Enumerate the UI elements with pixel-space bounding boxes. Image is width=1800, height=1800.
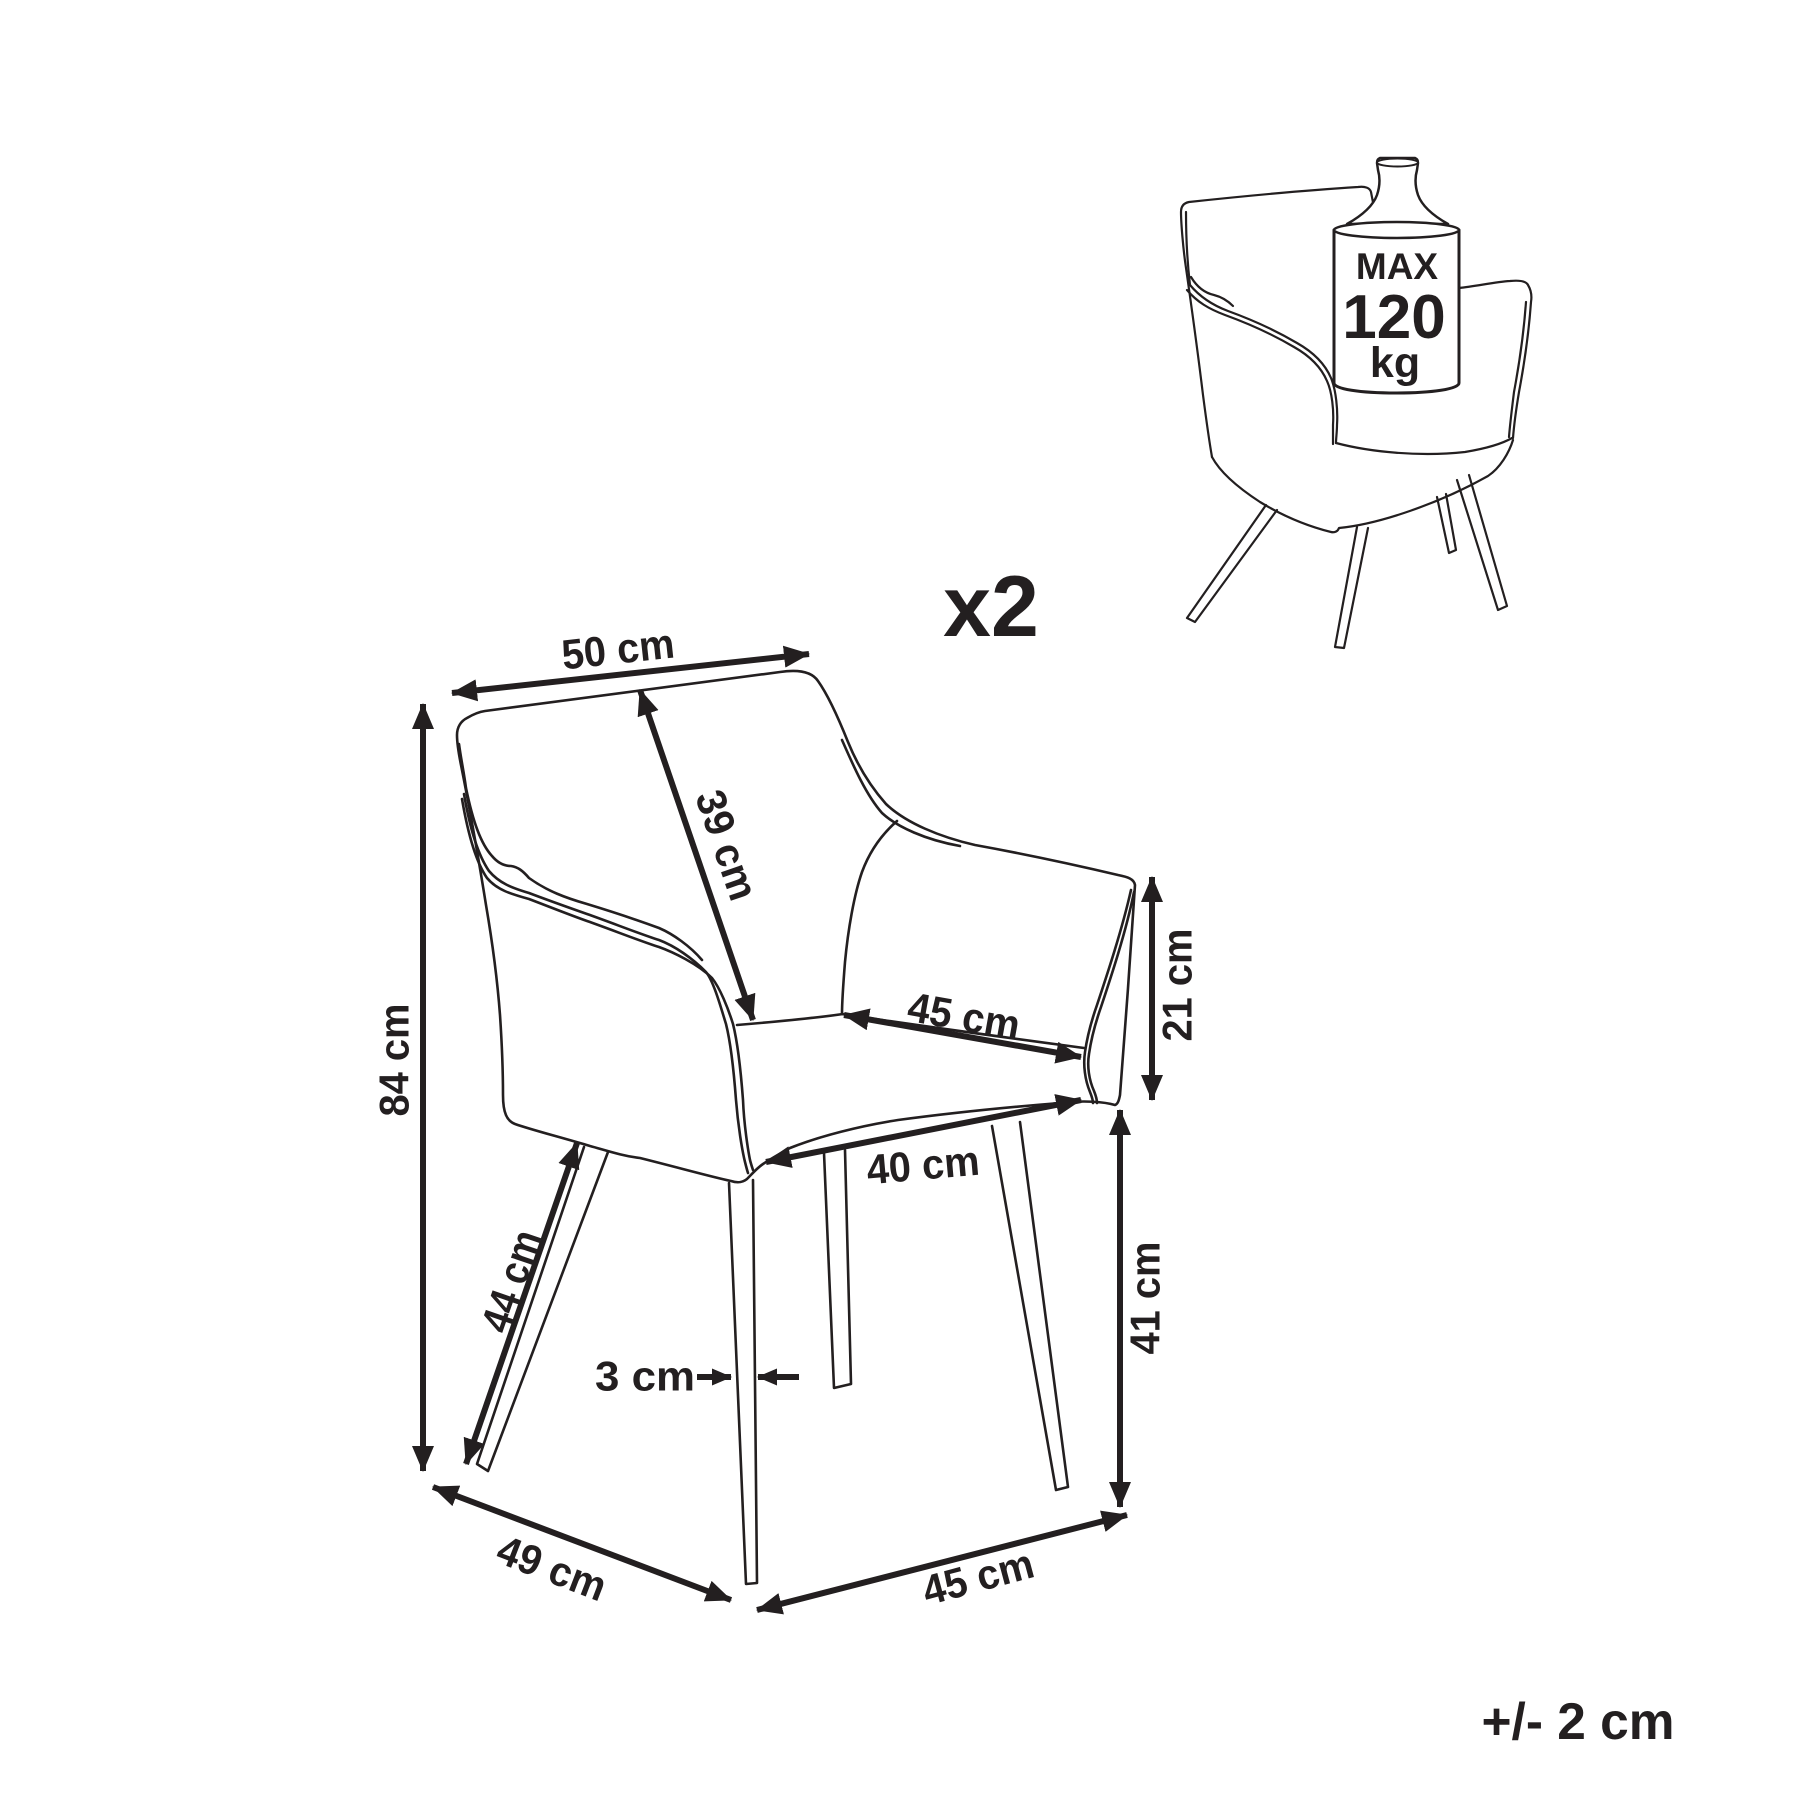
svg-text:40 cm: 40 cm <box>865 1137 982 1194</box>
svg-text:+/- 2 cm: +/- 2 cm <box>1482 1693 1675 1751</box>
svg-text:x2: x2 <box>943 559 1039 655</box>
svg-text:41 cm: 41 cm <box>1122 1242 1169 1355</box>
svg-text:21 cm: 21 cm <box>1154 929 1201 1042</box>
svg-text:MAX: MAX <box>1356 246 1439 287</box>
svg-text:3 cm: 3 cm <box>595 1353 695 1400</box>
svg-text:84 cm: 84 cm <box>371 1004 418 1117</box>
svg-text:kg: kg <box>1370 339 1420 387</box>
